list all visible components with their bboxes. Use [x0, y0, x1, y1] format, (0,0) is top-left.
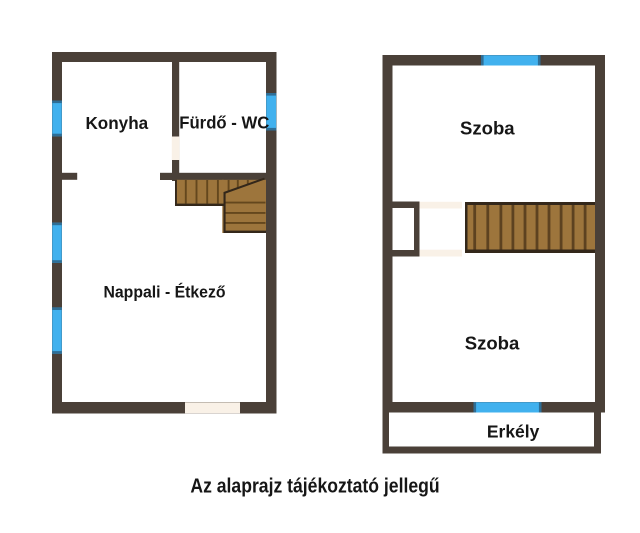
svg-text:Erkély: Erkély: [487, 421, 540, 441]
svg-text:Szoba: Szoba: [460, 118, 515, 139]
svg-text:Az alaprajz tájékoztató jelleg: Az alaprajz tájékoztató jellegű: [190, 475, 439, 497]
svg-text:Szoba: Szoba: [465, 333, 520, 354]
svg-text:Fürdő - WC: Fürdő - WC: [179, 113, 269, 132]
svg-text:Konyha: Konyha: [85, 112, 148, 133]
svg-text:Nappali - Étkező: Nappali - Étkező: [103, 282, 225, 302]
